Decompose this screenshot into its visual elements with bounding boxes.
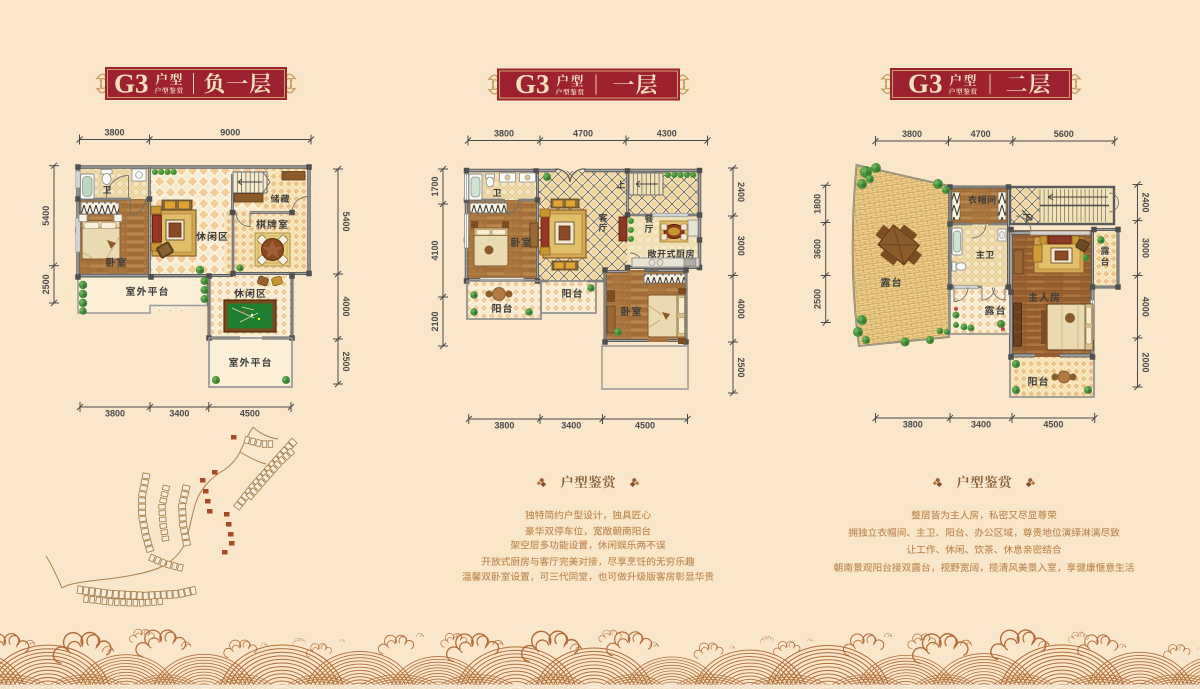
svg-text:1800: 1800 <box>813 194 823 214</box>
svg-text:4000: 4000 <box>341 296 351 316</box>
svg-text:G3: G3 <box>114 69 149 99</box>
svg-text:2400: 2400 <box>736 182 746 202</box>
svg-text:4000: 4000 <box>1141 297 1151 317</box>
svg-text:2500: 2500 <box>341 351 351 371</box>
svg-text:3800: 3800 <box>902 129 922 139</box>
svg-text:5400: 5400 <box>41 206 51 226</box>
svg-text:3800: 3800 <box>494 129 514 139</box>
svg-text:2000: 2000 <box>1141 352 1151 372</box>
svg-text:4700: 4700 <box>573 129 593 139</box>
svg-text:2500: 2500 <box>813 289 823 309</box>
svg-text:3000: 3000 <box>1141 238 1151 258</box>
svg-text:5400: 5400 <box>341 211 351 231</box>
svg-text:3400: 3400 <box>169 409 189 419</box>
svg-text:1700: 1700 <box>430 176 440 196</box>
svg-text:G3: G3 <box>515 69 550 99</box>
svg-text:4100: 4100 <box>430 240 440 260</box>
svg-text:2500: 2500 <box>736 357 746 377</box>
svg-text:G3: G3 <box>908 69 943 99</box>
svg-text:4500: 4500 <box>635 421 655 431</box>
svg-text:5600: 5600 <box>1054 129 1074 139</box>
svg-text:3800: 3800 <box>494 421 514 431</box>
svg-text:3000: 3000 <box>736 236 746 256</box>
svg-text:3800: 3800 <box>903 420 923 430</box>
svg-text:4500: 4500 <box>240 409 260 419</box>
svg-text:3800: 3800 <box>104 128 124 138</box>
svg-text:4000: 4000 <box>736 299 746 319</box>
svg-text:3600: 3600 <box>813 239 823 259</box>
svg-text:9000: 9000 <box>220 128 240 138</box>
svg-text:4300: 4300 <box>657 129 677 139</box>
svg-text:2100: 2100 <box>430 311 440 331</box>
svg-text:3400: 3400 <box>561 421 581 431</box>
svg-text:4500: 4500 <box>1043 420 1063 430</box>
svg-text:3400: 3400 <box>971 420 991 430</box>
svg-text:4700: 4700 <box>971 129 991 139</box>
svg-text:2400: 2400 <box>1141 193 1151 213</box>
svg-text:2500: 2500 <box>41 274 51 294</box>
svg-text:3800: 3800 <box>105 409 125 419</box>
